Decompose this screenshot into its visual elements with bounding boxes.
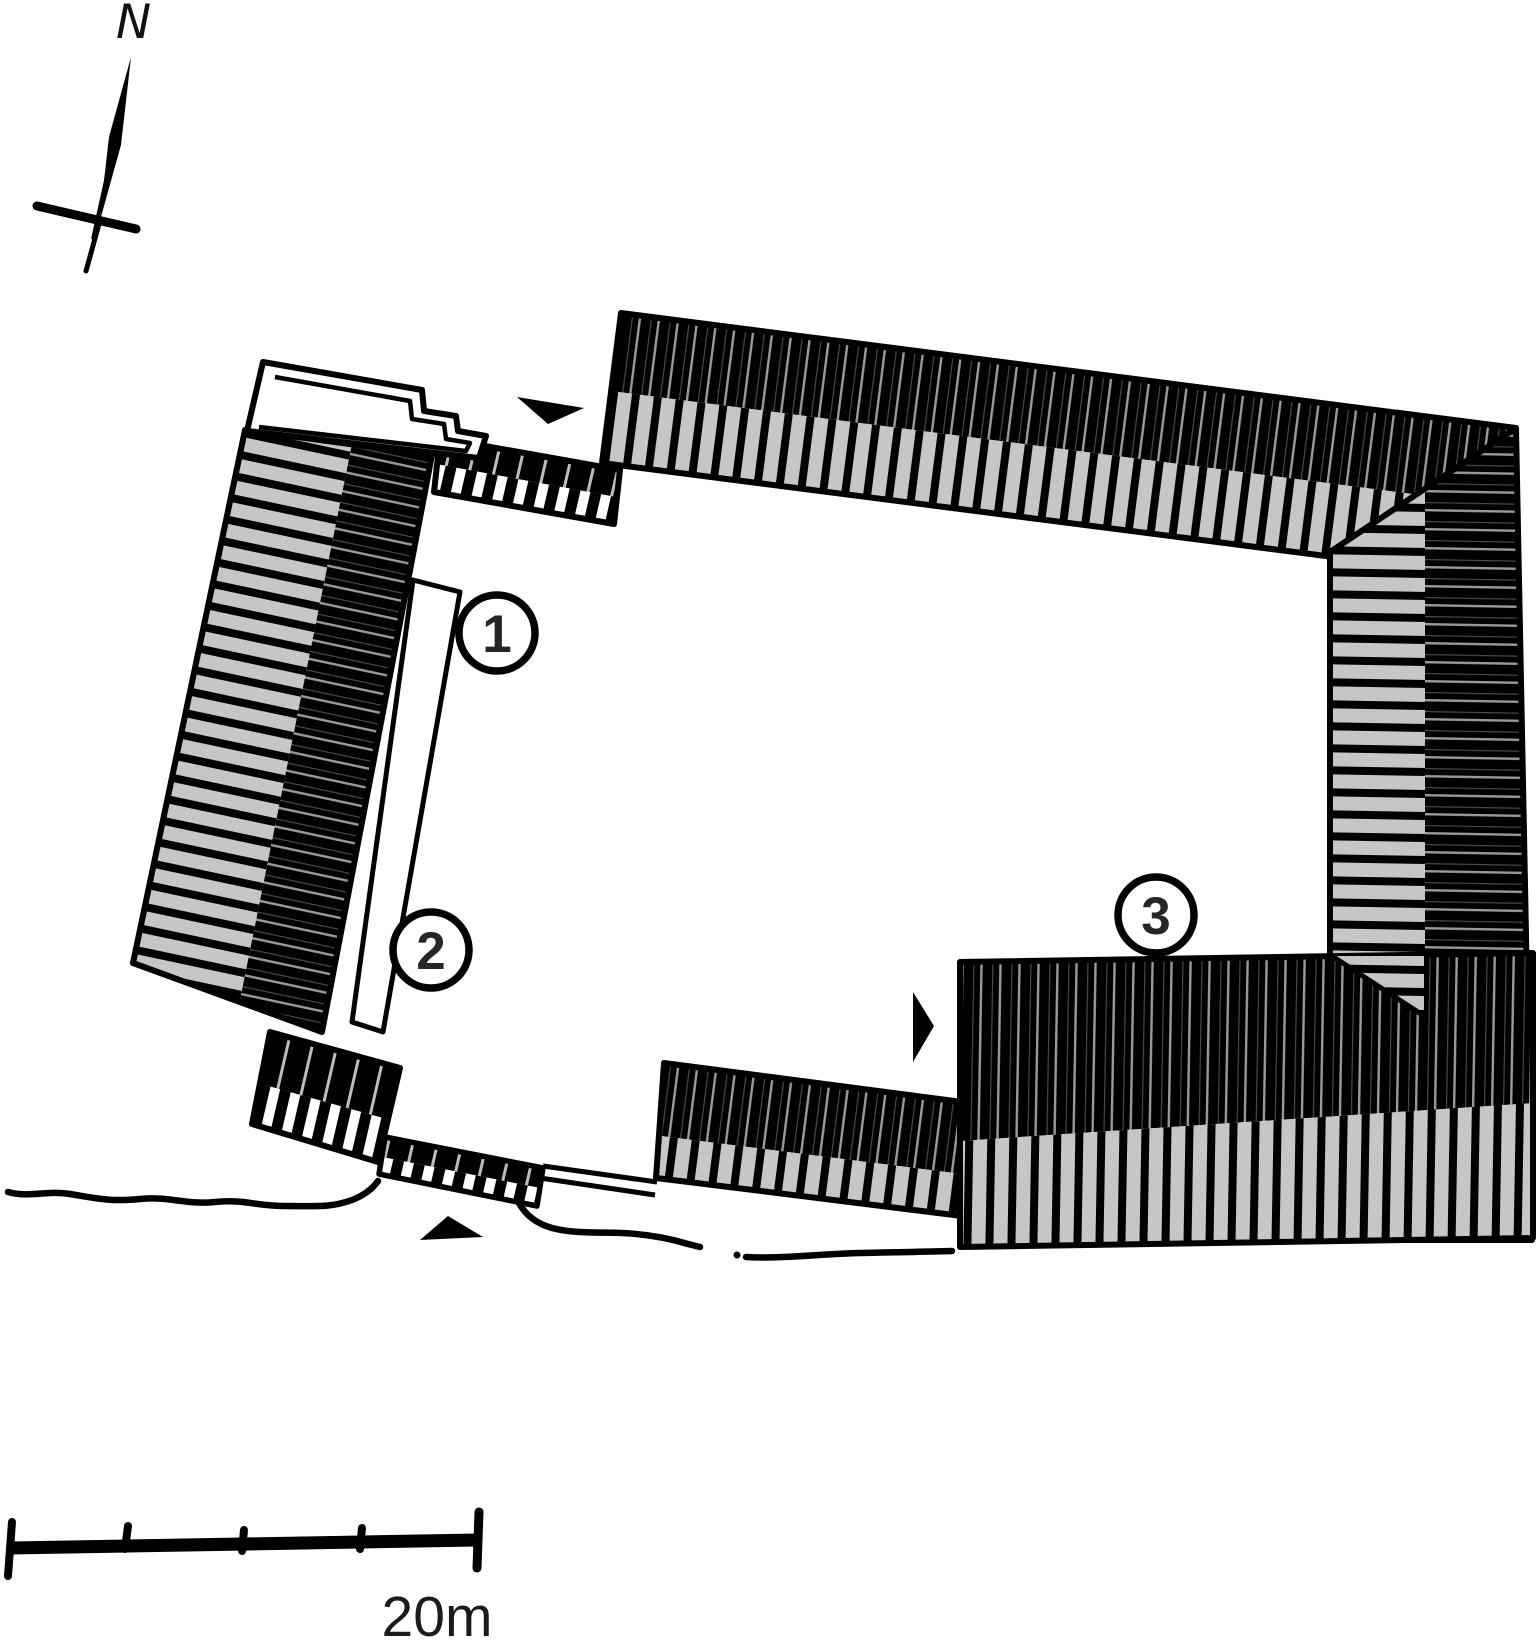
entrance-arrow-east-icon — [913, 992, 934, 1062]
marker-3-label: 3 — [1141, 887, 1170, 946]
ground-line-south-2 — [746, 1251, 952, 1257]
site-plan-drawing: N — [0, 0, 1537, 1641]
marker-3: 3 — [1118, 877, 1194, 953]
ground-line-south — [519, 1203, 700, 1247]
north-needle-crossbar — [37, 206, 136, 229]
compass: N — [37, 0, 151, 271]
entrance-arrow-south-icon — [420, 1216, 483, 1240]
southeast-block — [960, 953, 1533, 1247]
ground-line-dot — [734, 1252, 741, 1259]
ground-line-west — [8, 1181, 378, 1206]
marker-1: 1 — [459, 595, 535, 671]
scale-bar: 20m — [8, 1512, 492, 1641]
site-plan-figure: N — [0, 0, 1537, 1641]
scale-label: 20m — [382, 1585, 493, 1641]
courtyard-wall-double-line — [540, 1166, 657, 1195]
south-wing — [656, 1063, 962, 1216]
south-gate — [379, 1137, 543, 1206]
marker-1-label: 1 — [482, 605, 511, 664]
compass-label: N — [116, 0, 151, 50]
north-needle-shaft — [86, 224, 99, 271]
entrance-arrow-north-icon — [517, 397, 584, 424]
marker-2-label: 2 — [416, 922, 445, 981]
southwest-gate — [252, 1032, 400, 1162]
marker-2: 2 — [393, 912, 469, 988]
building-plan — [133, 313, 1533, 1247]
